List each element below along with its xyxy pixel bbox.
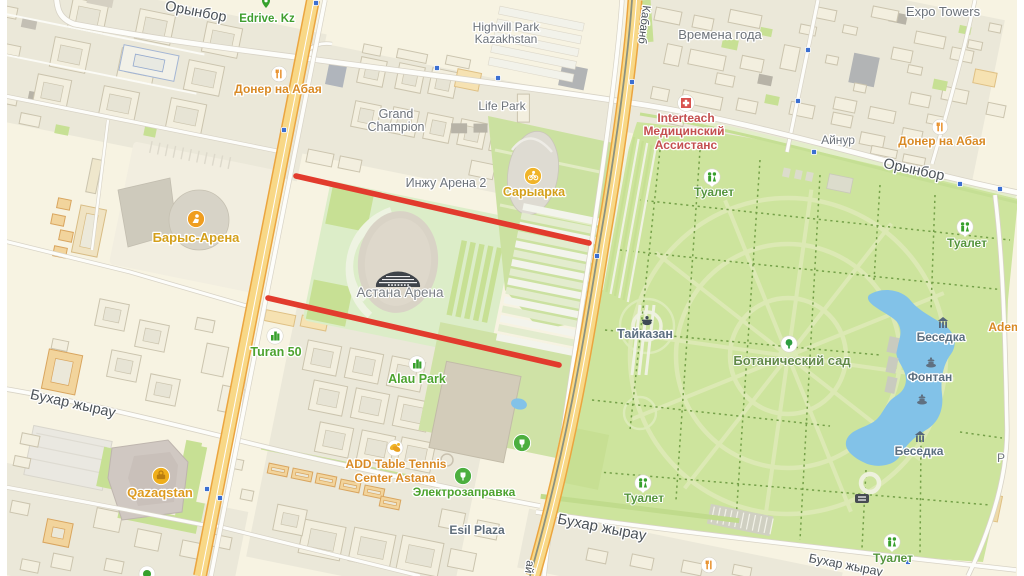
svg-text:Барыс-Арена: Барыс-Арена (153, 230, 241, 245)
svg-text:Interteach: Interteach (657, 111, 714, 125)
svg-text:Grand: Grand (379, 107, 414, 121)
svg-text:Туалет: Туалет (694, 185, 734, 199)
svg-text:Беседка: Беседка (895, 444, 944, 458)
svg-text:Champion: Champion (368, 120, 425, 134)
svg-text:Alau Park: Alau Park (388, 372, 446, 386)
svg-text:Донер на Абая: Донер на Абая (898, 134, 985, 148)
svg-text:Life Park: Life Park (478, 99, 526, 113)
svg-text:Qazaqstan: Qazaqstan (127, 485, 193, 500)
svg-text:Электрозаправка: Электрозаправка (413, 485, 516, 499)
svg-text:Туалет: Туалет (947, 236, 987, 250)
svg-text:Медицинский: Медицинский (643, 124, 724, 138)
svg-text:Center Astana: Center Astana (355, 471, 436, 485)
svg-text:Ассистанс: Ассистанс (655, 138, 718, 152)
svg-text:Edrive. Kz: Edrive. Kz (239, 13, 295, 25)
svg-text:Астана Арена: Астана Арена (357, 285, 444, 300)
svg-text:Фонтан: Фонтан (908, 370, 953, 384)
svg-text:Туалет: Туалет (873, 551, 913, 565)
svg-text:Донер на Абая: Донер на Абая (234, 82, 321, 96)
svg-text:Esil Plaza: Esil Plaza (449, 523, 505, 537)
svg-text:ADD Table Tennis: ADD Table Tennis (346, 457, 447, 471)
svg-text:Тайказан: Тайказан (617, 327, 673, 341)
svg-text:Adem: Adem (988, 320, 1021, 334)
svg-text:Туалет: Туалет (624, 491, 664, 505)
svg-text:Ботанический сад: Ботанический сад (733, 353, 851, 368)
svg-text:Expo Towers: Expo Towers (906, 4, 981, 19)
svg-text:Turan 50: Turan 50 (250, 345, 301, 359)
svg-text:Беседка: Беседка (917, 330, 966, 344)
svg-text:Р: Р (997, 451, 1005, 465)
svg-text:Времена года: Времена года (678, 27, 762, 42)
svg-text:Kazakhstan: Kazakhstan (475, 32, 538, 46)
svg-text:Айнур: Айнур (821, 133, 855, 147)
svg-text:Сарыарка: Сарыарка (503, 185, 566, 199)
svg-text:Инжу Арена 2: Инжу Арена 2 (406, 176, 487, 190)
